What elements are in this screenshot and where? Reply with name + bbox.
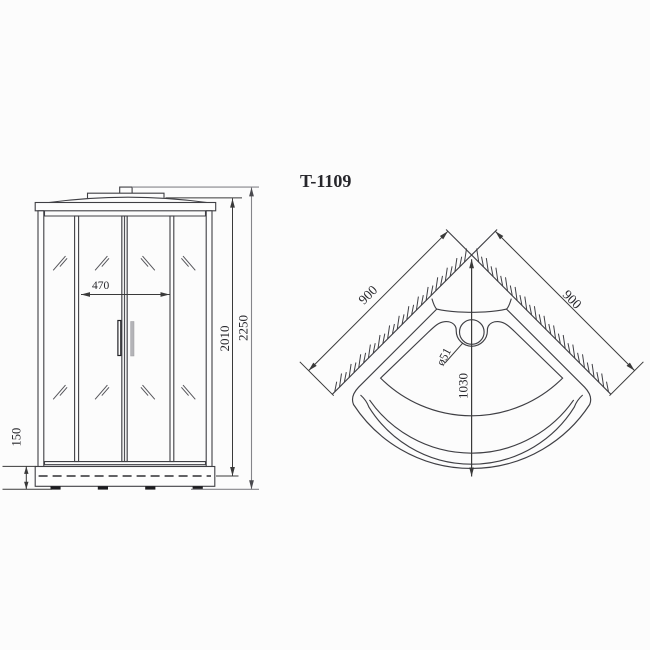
svg-text:1030: 1030 xyxy=(456,373,471,399)
svg-text:T-1109: T-1109 xyxy=(300,171,351,191)
svg-text:150: 150 xyxy=(10,428,24,447)
svg-text:2250: 2250 xyxy=(235,315,250,341)
svg-text:2010: 2010 xyxy=(217,326,232,352)
svg-text:470: 470 xyxy=(92,280,110,292)
